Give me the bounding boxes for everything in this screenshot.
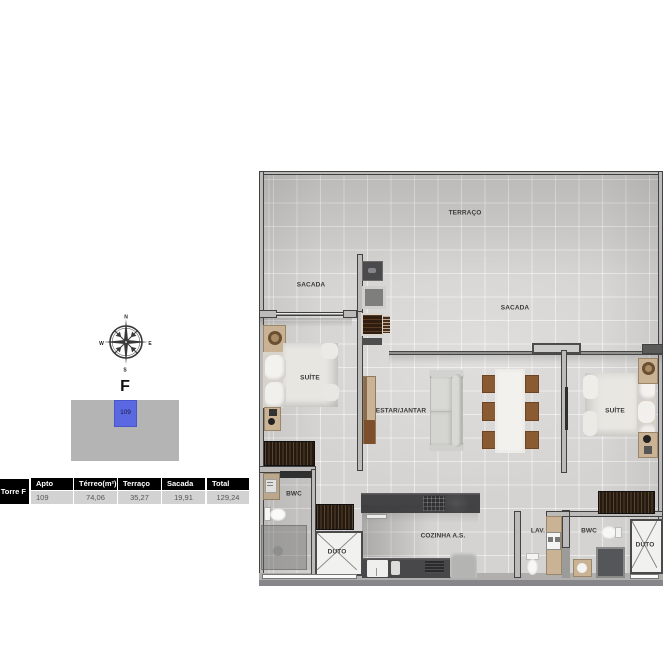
svg-text:N: N — [124, 315, 128, 321]
svg-text:E: E — [148, 341, 152, 347]
svg-text:S: S — [123, 368, 127, 373]
svg-text:W: W — [99, 341, 104, 347]
